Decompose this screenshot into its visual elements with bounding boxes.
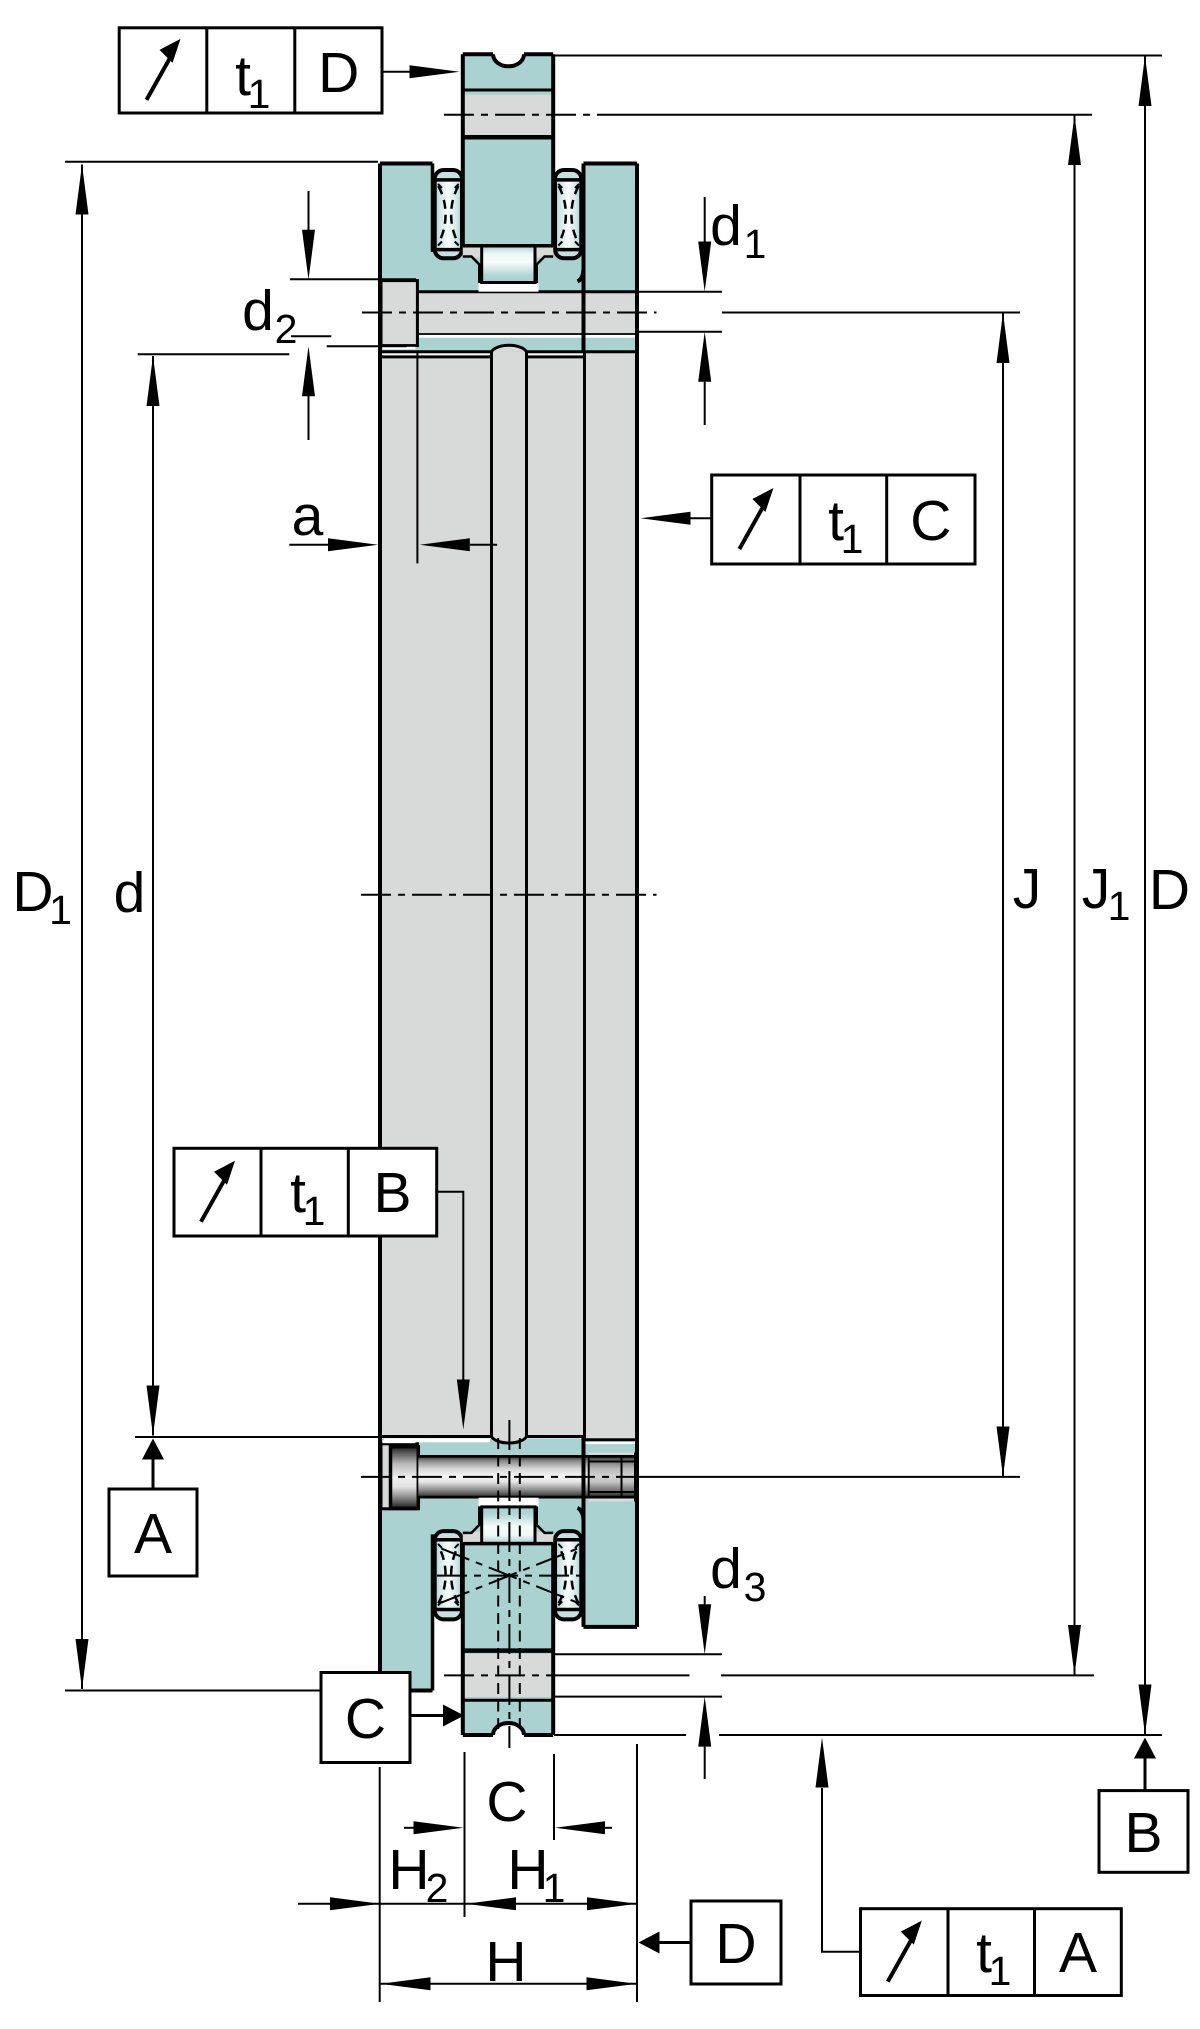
svg-text:a: a <box>292 484 324 548</box>
svg-text:D: D <box>12 860 53 924</box>
svg-text:1: 1 <box>744 221 767 267</box>
svg-text:C: C <box>345 1687 386 1751</box>
svg-text:d: d <box>710 194 742 258</box>
svg-text:2: 2 <box>426 1865 449 1911</box>
svg-text:C: C <box>910 489 951 553</box>
svg-text:1: 1 <box>841 516 864 562</box>
svg-text:D: D <box>318 41 359 105</box>
svg-text:D: D <box>715 1912 756 1976</box>
svg-text:1: 1 <box>49 887 72 933</box>
svg-text:A: A <box>134 1502 172 1566</box>
svg-text:H: H <box>485 1930 526 1994</box>
svg-text:C: C <box>486 1770 527 1834</box>
svg-text:2: 2 <box>275 306 298 352</box>
svg-text:1: 1 <box>303 1188 326 1234</box>
svg-text:3: 3 <box>744 1564 767 1610</box>
svg-text:1: 1 <box>1108 883 1131 929</box>
svg-text:H: H <box>388 1838 429 1902</box>
svg-text:J: J <box>1013 857 1042 921</box>
svg-text:d: d <box>710 1537 742 1601</box>
svg-text:A: A <box>1059 1921 1097 1985</box>
svg-text:J: J <box>1082 857 1111 921</box>
svg-text:1: 1 <box>248 71 271 117</box>
svg-text:d: d <box>114 861 146 925</box>
svg-text:B: B <box>373 1161 411 1225</box>
svg-text:D: D <box>1149 858 1190 922</box>
svg-text:d: d <box>242 279 274 343</box>
svg-text:1: 1 <box>989 1948 1012 1994</box>
svg-text:1: 1 <box>543 1865 566 1911</box>
svg-text:B: B <box>1124 1801 1162 1865</box>
